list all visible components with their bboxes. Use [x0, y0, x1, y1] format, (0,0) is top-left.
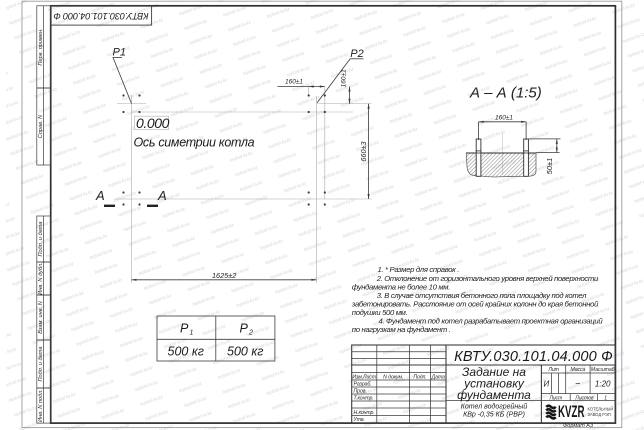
svg-text:Перв. примен.: Перв. примен. [38, 28, 44, 65]
svg-text:Подп. и дата: Подп. и дата [38, 346, 44, 381]
svg-text:Инв. N дубл.: Инв. N дубл. [38, 262, 44, 294]
svg-text:КВТУ.030.101.04.000 Ф: КВТУ.030.101.04.000 Ф [454, 349, 613, 365]
svg-text:Утв.: Утв. [354, 417, 365, 423]
svg-text:50±1: 50±1 [545, 158, 554, 175]
svg-text:Подп. и дата: Подп. и дата [38, 221, 44, 256]
svg-text:500 кг: 500 кг [168, 345, 204, 359]
svg-text:по нагрузкам на фундамент .: по нагрузкам на фундамент . [352, 325, 451, 334]
svg-text:Взам. инв. N: Взам. инв. N [38, 300, 44, 334]
svg-text:Лит: Лит [547, 367, 559, 373]
svg-text:160±1: 160±1 [341, 69, 348, 87]
svg-text:Пров.: Пров. [354, 389, 367, 395]
svg-text:Инв. N подл.: Инв. N подл. [38, 389, 44, 422]
svg-text:фундамента: фундамента [457, 388, 531, 402]
svg-text:–: – [575, 379, 581, 388]
svg-text:1: 1 [190, 330, 194, 337]
svg-text:Подп.: Подп. [413, 374, 426, 380]
svg-text:2: 2 [248, 330, 253, 337]
svg-text:P: P [240, 322, 249, 336]
svg-text:A: A [95, 188, 105, 203]
svg-text:Листов: Листов [574, 396, 594, 402]
svg-text:Справ. N: Справ. N [38, 114, 44, 138]
svg-text:660±3: 660±3 [359, 141, 368, 161]
svg-text:1. * Размер для справок .: 1. * Размер для справок . [378, 265, 460, 274]
svg-text:КОТЕЛЬНЫЙ: КОТЕЛЬНЫЙ [588, 407, 614, 412]
svg-text:КВр -0,35 КБ (РВР): КВр -0,35 КБ (РВР) [463, 412, 525, 419]
svg-text:Масштаб: Масштаб [591, 367, 616, 373]
svg-text:N докум.: N докум. [383, 374, 403, 380]
svg-text:500 кг: 500 кг [227, 345, 263, 359]
svg-text:Н.контр.: Н.контр. [354, 410, 375, 416]
svg-text:160±1: 160±1 [495, 115, 513, 122]
svg-text:Ось симетрии котла: Ось симетрии котла [134, 135, 255, 149]
svg-text:P: P [180, 322, 189, 336]
svg-text:Т.контр.: Т.контр. [354, 396, 374, 402]
svg-text:Изм.Лист: Изм.Лист [352, 374, 376, 380]
svg-text:КВТУ.030.101.04.000 Ф: КВТУ.030.101.04.000 Ф [53, 11, 149, 21]
svg-text:Котел водогрейный: Котел водогрейный [461, 403, 528, 411]
svg-text:0.000: 0.000 [136, 115, 170, 131]
svg-text:KVZR: KVZR [558, 403, 585, 421]
svg-text:А – А (1:5): А – А (1:5) [469, 85, 542, 102]
svg-text:160±1: 160±1 [285, 79, 303, 86]
svg-text:A: A [157, 188, 167, 203]
svg-text:1625±2: 1625±2 [212, 271, 236, 280]
svg-text:Лист: Лист [548, 396, 563, 402]
svg-text:И: И [544, 380, 550, 389]
svg-text:ЗАВОД РЭП: ЗАВОД РЭП [588, 412, 611, 417]
svg-text:Формат А3: Формат А3 [563, 423, 594, 429]
svg-text:Масса: Масса [570, 367, 585, 373]
svg-text:1: 1 [604, 396, 607, 402]
svg-text:Дата: Дата [431, 374, 446, 380]
svg-text:1:20: 1:20 [595, 380, 611, 389]
svg-text:P1: P1 [113, 47, 126, 59]
svg-text:P2: P2 [350, 48, 363, 60]
svg-text:Разраб.: Разраб. [354, 382, 372, 388]
